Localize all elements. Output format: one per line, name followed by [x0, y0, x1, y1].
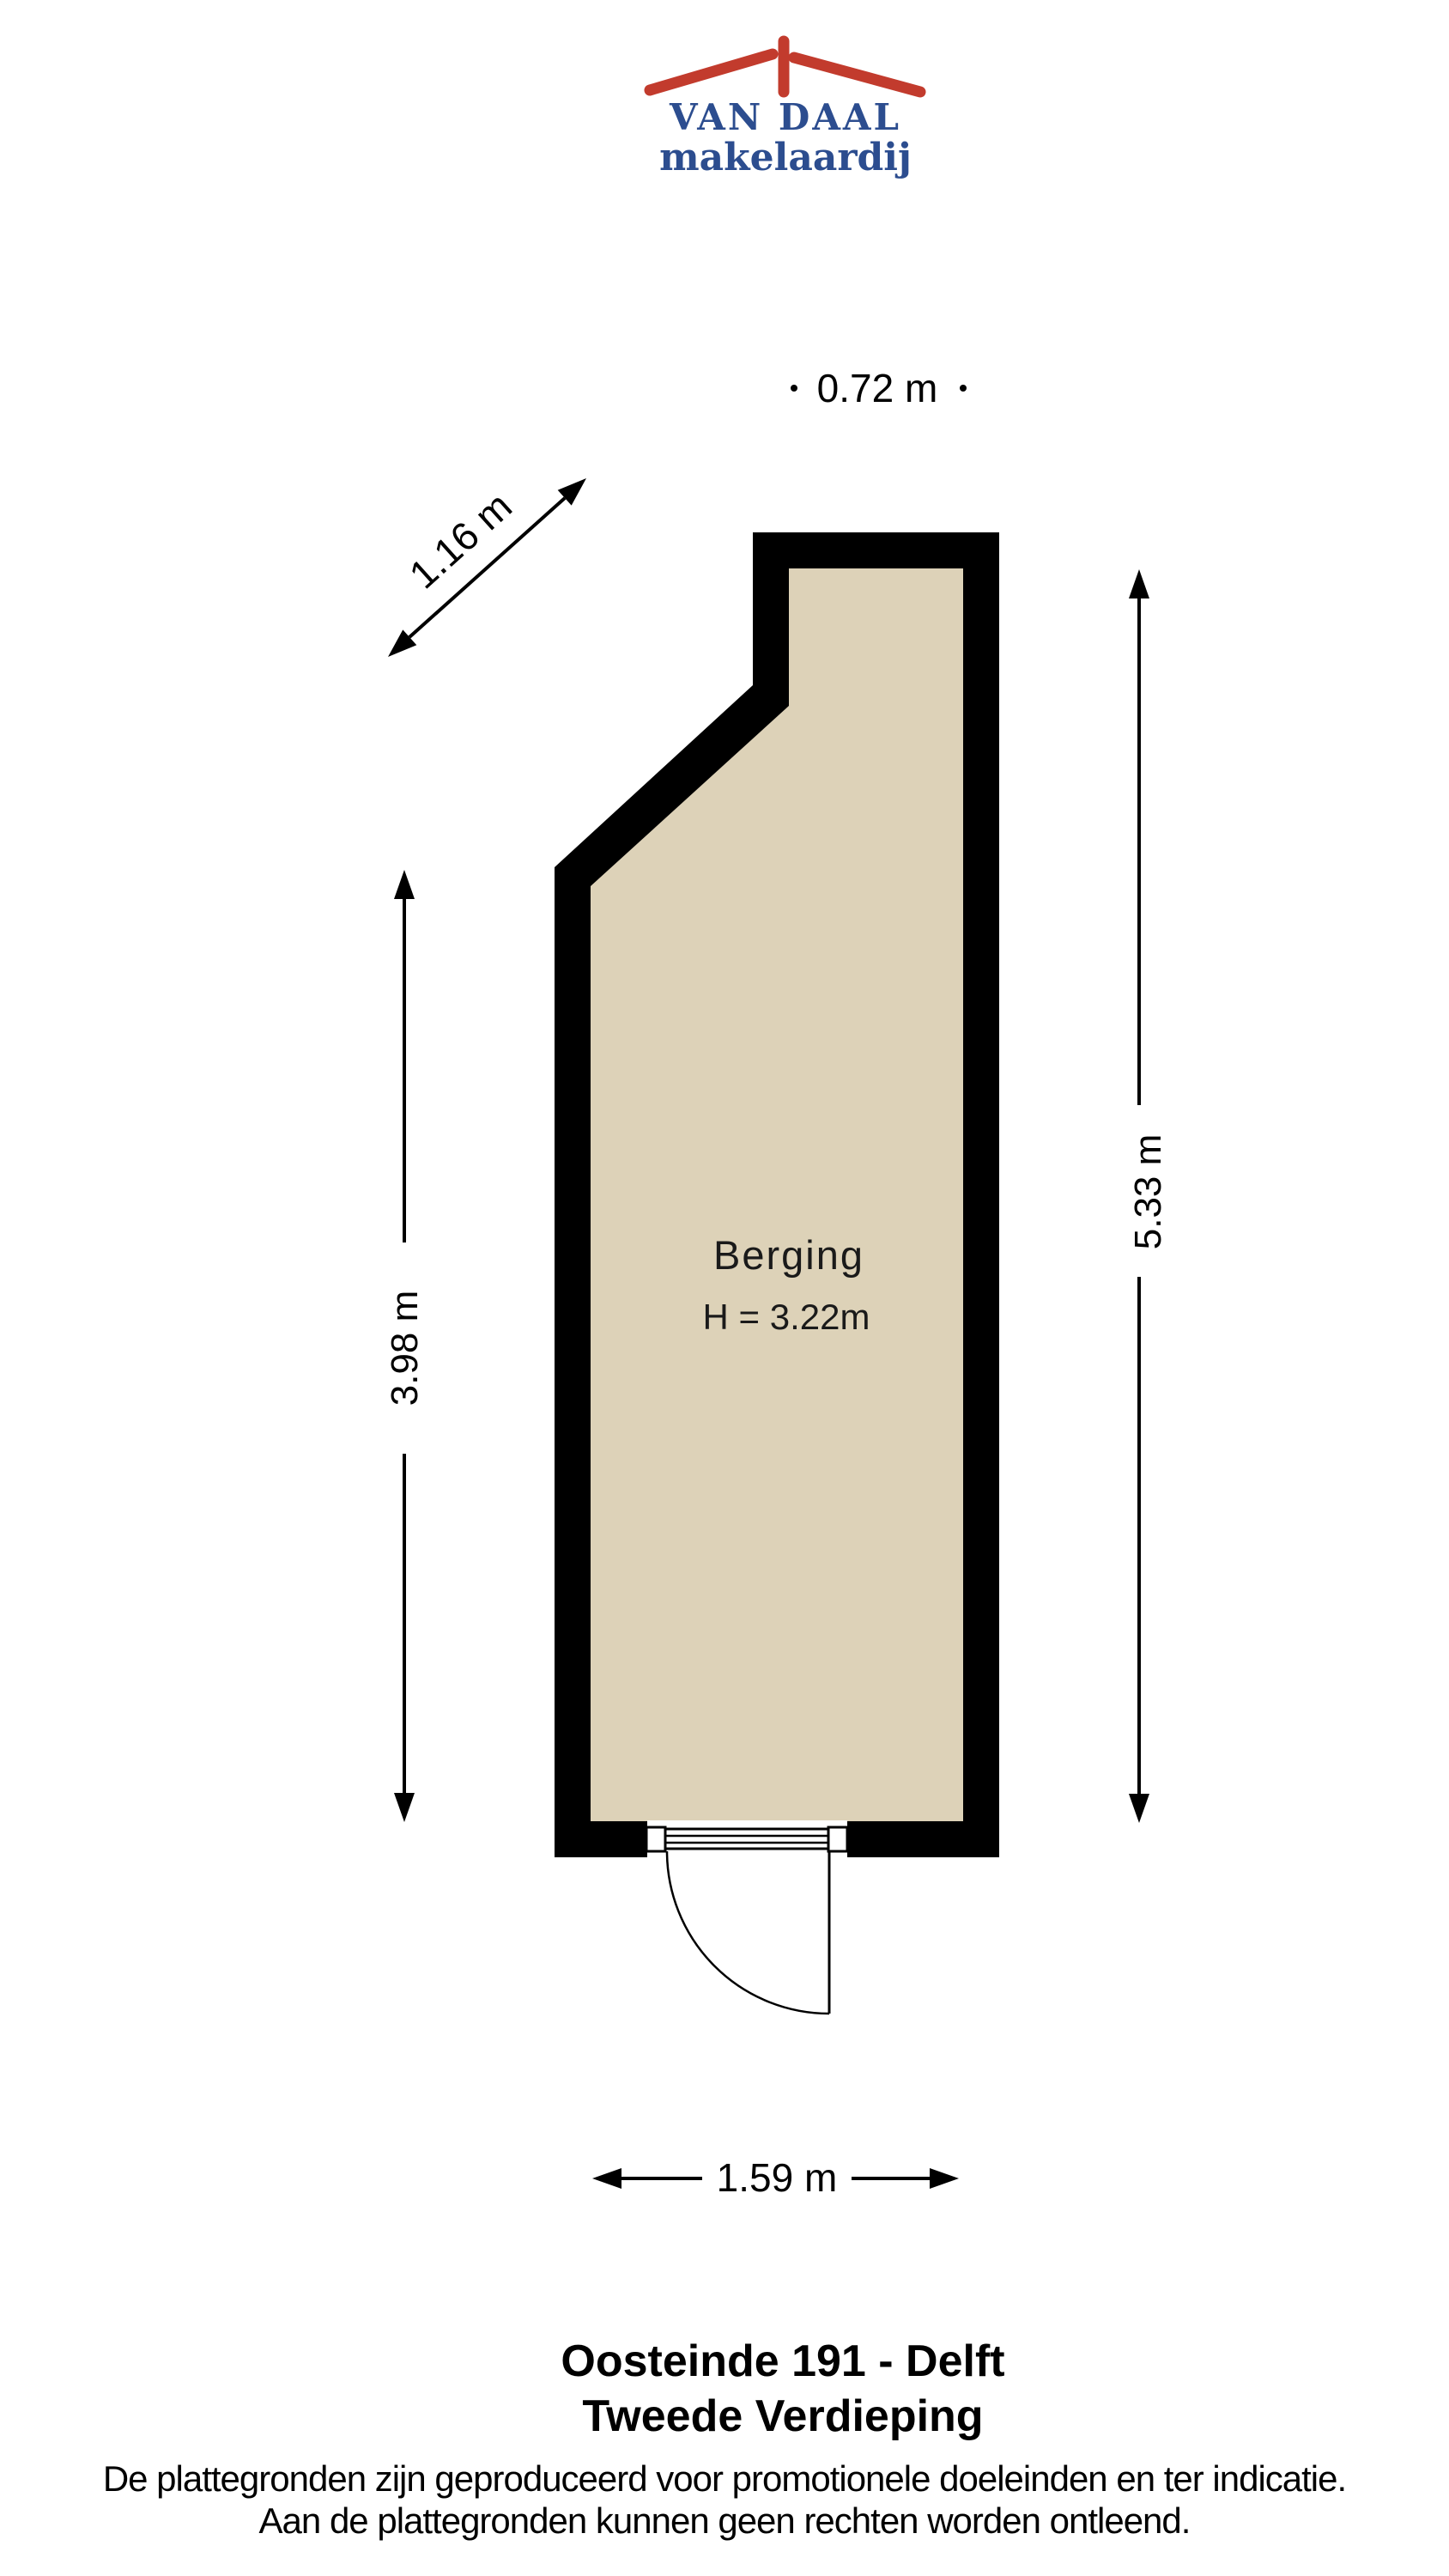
dim-arrow-up — [394, 870, 415, 899]
dim-bottom-label: 1.59 m — [717, 2155, 838, 2200]
floorplan-drawing: Berging H = 3.22m 0.72 m 1.16 m 3.98 m — [0, 0, 1449, 2576]
dim-arrow-left — [592, 2168, 621, 2189]
plan-title-floor: Tweede Verdieping — [117, 2389, 1449, 2444]
disclaimer-line2: Aan de plattegronden kunnen geen rechten… — [0, 2500, 1449, 2542]
plan-title: Oosteinde 191 - Delft Tweede Verdieping — [117, 2334, 1449, 2444]
floorplan-page: VAN DAAL makelaardij Berging H = 3.22m 0… — [0, 0, 1449, 2576]
door-swing-arc — [667, 1851, 829, 2014]
dim-tick-left — [791, 385, 797, 392]
disclaimer: De plattegronden zijn geproduceerd voor … — [0, 2458, 1449, 2542]
door-frame — [665, 1829, 828, 1849]
dim-right-label: 5.33 m — [1127, 1134, 1169, 1250]
dimension-top: 0.72 m — [791, 366, 967, 410]
room-height-label: H = 3.22m — [703, 1297, 870, 1337]
dim-tick-right — [960, 385, 967, 392]
disclaimer-line1: De plattegronden zijn geproduceerd voor … — [0, 2458, 1449, 2500]
room-name-label: Berging — [713, 1232, 864, 1278]
door-post-right — [828, 1827, 847, 1851]
door-post-left — [646, 1827, 665, 1851]
dim-arrow-down — [1129, 1794, 1149, 1823]
dimension-left: 3.98 m — [384, 870, 426, 1822]
dimension-right: 5.33 m — [1127, 569, 1169, 1823]
dim-top-label: 0.72 m — [817, 366, 938, 410]
dim-left-label: 3.98 m — [384, 1291, 426, 1406]
dimension-bottom: 1.59 m — [592, 2155, 959, 2200]
dim-arrow-up — [1129, 569, 1149, 598]
dim-diagonal-label: 1.16 m — [401, 483, 520, 598]
plan-title-address: Oosteinde 191 - Delft — [117, 2334, 1449, 2389]
dimension-diagonal: 1.16 m — [388, 478, 586, 657]
dim-arrow-right — [930, 2168, 959, 2189]
dim-arrow-down — [394, 1793, 415, 1822]
room-floor — [591, 568, 963, 1821]
